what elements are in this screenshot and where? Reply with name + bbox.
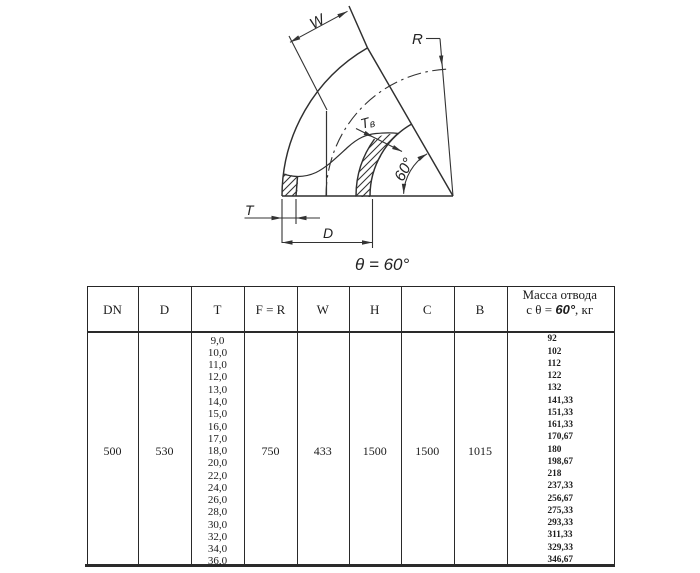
svg-text:D: D [323, 225, 333, 241]
svg-text:R: R [412, 31, 423, 48]
svg-text:W: W [307, 10, 329, 33]
svg-text:Tв: Tв [359, 113, 377, 133]
svg-text:T: T [245, 202, 255, 218]
svg-text:60°: 60° [391, 155, 417, 184]
svg-text:θ = 60°: θ = 60° [355, 255, 410, 274]
